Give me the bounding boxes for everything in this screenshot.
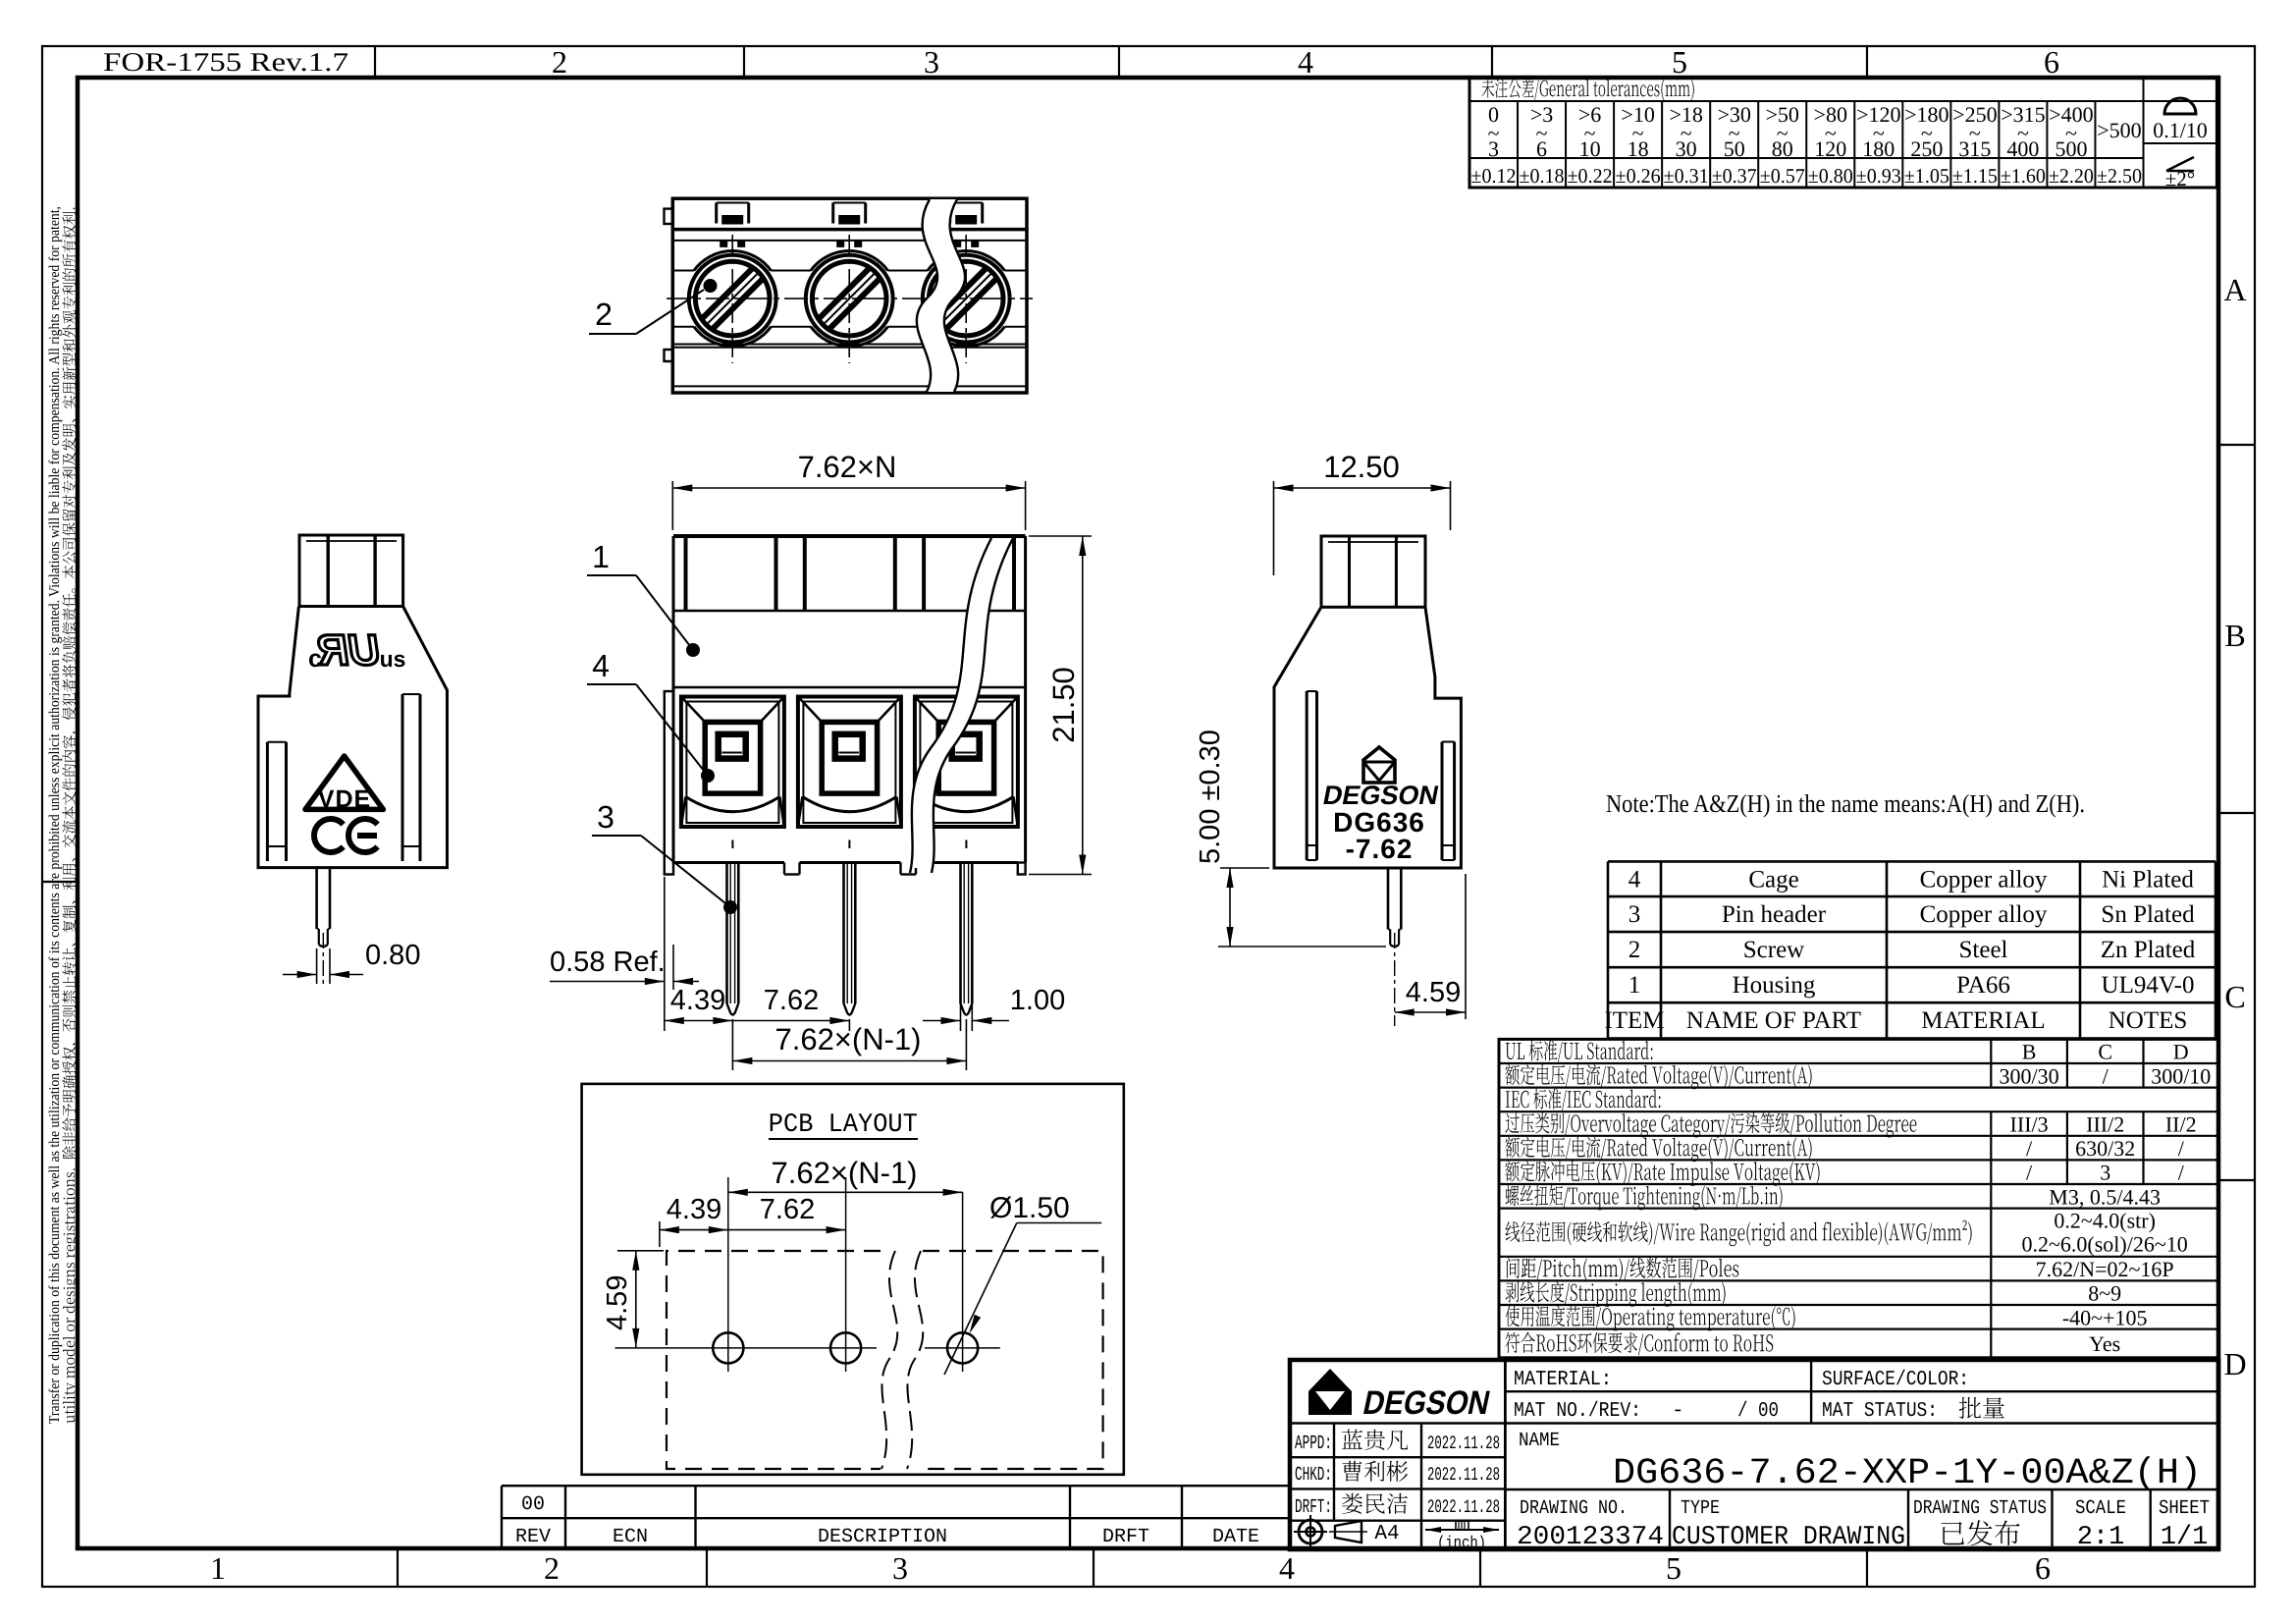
svg-text:Copper alloy: Copper alloy: [1920, 866, 2048, 893]
svg-text:6: 6: [2044, 44, 2059, 80]
svg-text:us: us: [380, 646, 406, 672]
svg-text:1: 1: [1629, 972, 1641, 999]
svg-text:Cage: Cage: [1748, 866, 1798, 893]
svg-text:Pin header: Pin header: [1722, 901, 1827, 928]
svg-text:±1.15: ±1.15: [1952, 164, 1998, 188]
svg-text:7.62: 7.62: [760, 1194, 815, 1225]
svg-text:21.50: 21.50: [1046, 667, 1081, 743]
svg-text:180: 180: [1862, 136, 1895, 161]
svg-text:±0.26: ±0.26: [1616, 164, 1661, 188]
svg-text:7.62×N: 7.62×N: [798, 450, 897, 484]
svg-text:7.62/N=02~16P: 7.62/N=02~16P: [2036, 1257, 2174, 1281]
svg-text:315: 315: [1958, 136, 1991, 161]
svg-text:±0.31: ±0.31: [1664, 164, 1709, 188]
svg-text:DEGSON: DEGSON: [1360, 1384, 1493, 1422]
svg-text:18: 18: [1628, 136, 1649, 161]
svg-text:400: 400: [2006, 136, 2039, 161]
svg-text:10: 10: [1579, 136, 1601, 161]
svg-text:/: /: [2026, 1161, 2033, 1185]
svg-text:0.58 Ref.: 0.58 Ref.: [550, 947, 666, 978]
svg-text:2022.11.28: 2022.11.28: [1427, 1496, 1500, 1518]
svg-text:SHEET: SHEET: [2159, 1497, 2210, 1520]
svg-text:7.62×(N-1): 7.62×(N-1): [771, 1156, 917, 1190]
svg-text:Note:The A&Z(H) in the name me: Note:The A&Z(H) in the name means:A(H) a…: [1606, 789, 2085, 818]
svg-text:1: 1: [210, 1550, 226, 1586]
svg-text:DRFT: DRFT: [1102, 1526, 1149, 1548]
svg-text:120: 120: [1814, 136, 1846, 161]
svg-text:±0.22: ±0.22: [1568, 164, 1613, 188]
svg-text:80: 80: [1772, 136, 1793, 161]
svg-text:/: /: [2178, 1161, 2185, 1185]
svg-text:C: C: [2098, 1040, 2112, 1064]
svg-text:±0.12: ±0.12: [1471, 164, 1517, 188]
svg-text:III/2: III/2: [2086, 1112, 2124, 1137]
svg-text:REV: REV: [515, 1526, 551, 1548]
svg-text:7.62×(N-1): 7.62×(N-1): [774, 1022, 921, 1056]
svg-text:Yes: Yes: [2089, 1331, 2120, 1356]
svg-text:1: 1: [592, 539, 610, 574]
svg-text:APPD:: APPD:: [1295, 1433, 1332, 1455]
svg-text:DRFT:: DRFT:: [1295, 1496, 1332, 1519]
svg-text:±0.18: ±0.18: [1520, 164, 1565, 188]
svg-text:300/10: 300/10: [2151, 1063, 2211, 1088]
svg-text:±2°: ±2°: [2165, 167, 2195, 190]
svg-text:8~9: 8~9: [2088, 1281, 2121, 1306]
svg-text:>500: >500: [2097, 118, 2141, 142]
svg-text:DG636-7.62-XXP-1Y-00A&Z(H): DG636-7.62-XXP-1Y-00A&Z(H): [1613, 1453, 2202, 1494]
svg-text:(inch): (inch): [1437, 1535, 1486, 1553]
svg-text:0.2~4.0(str): 0.2~4.0(str): [2054, 1209, 2156, 1233]
svg-text:±1.05: ±1.05: [1904, 164, 1949, 188]
svg-text:M3, 0.5/4.43: M3, 0.5/4.43: [2049, 1184, 2161, 1209]
svg-text:200123374: 200123374: [1517, 1523, 1664, 1552]
svg-text:MAT NO./REV:: MAT NO./REV:: [1514, 1400, 1641, 1423]
svg-text:3: 3: [892, 1550, 908, 1586]
svg-text:MATERIAL:: MATERIAL:: [1514, 1369, 1612, 1391]
svg-text:Ni Plated: Ni Plated: [2102, 866, 2194, 893]
svg-text:/: /: [2178, 1136, 2185, 1161]
svg-text:UL94V-0: UL94V-0: [2102, 972, 2195, 999]
svg-text:4: 4: [1279, 1550, 1295, 1586]
svg-text:4: 4: [592, 648, 610, 683]
svg-text:±0.93: ±0.93: [1856, 164, 1901, 188]
svg-text:DATE: DATE: [1212, 1526, 1259, 1548]
svg-text:12.50: 12.50: [1323, 450, 1400, 484]
svg-text:250: 250: [1910, 136, 1943, 161]
svg-text:0.2~6.0(sol)/26~10: 0.2~6.0(sol)/26~10: [2022, 1232, 2188, 1257]
svg-text:NOTES: NOTES: [2109, 1007, 2188, 1034]
svg-text:Transfer or duplication of thi: Transfer or duplication of this document…: [47, 206, 63, 1424]
svg-text:500: 500: [2055, 136, 2087, 161]
svg-text:±1.60: ±1.60: [2001, 164, 2046, 188]
svg-text:D: D: [2223, 1346, 2246, 1381]
svg-text:II/2: II/2: [2165, 1112, 2197, 1137]
svg-text:30: 30: [1676, 136, 1697, 161]
svg-text:TYPE: TYPE: [1681, 1497, 1720, 1520]
svg-text:III/3: III/3: [2010, 1112, 2049, 1137]
svg-text:2: 2: [1629, 937, 1641, 963]
svg-text:4.59: 4.59: [602, 1275, 633, 1330]
svg-text:VDE: VDE: [318, 785, 371, 813]
svg-text:DRAWING STATUS: DRAWING STATUS: [1913, 1497, 2047, 1520]
svg-text:-: -: [1672, 1400, 1684, 1423]
svg-text:A4: A4: [1374, 1523, 1399, 1545]
svg-text:±2.20: ±2.20: [2049, 164, 2094, 188]
svg-text:FOR-1755 Rev.1.7: FOR-1755 Rev.1.7: [103, 47, 348, 77]
svg-text:Ø1.50: Ø1.50: [989, 1192, 1070, 1224]
svg-text:c: c: [308, 645, 322, 673]
svg-text:7.62: 7.62: [764, 985, 819, 1016]
svg-text:6: 6: [1536, 136, 1547, 161]
svg-text:630/32: 630/32: [2075, 1136, 2135, 1161]
svg-text:5: 5: [1672, 44, 1687, 80]
svg-text:/: /: [2026, 1136, 2033, 1161]
svg-text:-40~+105: -40~+105: [2062, 1305, 2148, 1329]
svg-text:Housing: Housing: [1733, 972, 1816, 999]
svg-text:C: C: [2224, 979, 2245, 1014]
svg-text:00: 00: [521, 1493, 545, 1516]
svg-text:50: 50: [1724, 136, 1745, 161]
svg-text:B: B: [2022, 1040, 2037, 1064]
svg-text:0.1/10: 0.1/10: [2153, 118, 2208, 142]
svg-text:/ 00: / 00: [1737, 1400, 1779, 1423]
svg-text:2:1: 2:1: [2077, 1523, 2125, 1552]
svg-text:-7.62: -7.62: [1346, 834, 1414, 864]
svg-text:ITEM: ITEM: [1604, 1007, 1664, 1034]
svg-text:3: 3: [1488, 136, 1499, 161]
svg-text:300/30: 300/30: [2000, 1063, 2059, 1088]
svg-text:5: 5: [1666, 1550, 1682, 1586]
svg-text:PA66: PA66: [1956, 972, 2010, 999]
svg-text:4: 4: [1298, 44, 1313, 80]
svg-text:4: 4: [1629, 866, 1641, 893]
svg-text:2: 2: [544, 1550, 560, 1586]
svg-text:2022.11.28: 2022.11.28: [1427, 1464, 1500, 1486]
svg-text:B: B: [2224, 618, 2245, 653]
svg-text:DEGSON: DEGSON: [1320, 781, 1441, 810]
svg-text:DESCRIPTION: DESCRIPTION: [818, 1526, 947, 1548]
svg-text:4.39: 4.39: [670, 985, 725, 1016]
svg-text:3: 3: [597, 799, 614, 835]
svg-text:Zn Plated: Zn Plated: [2101, 937, 2196, 963]
svg-text:1/1: 1/1: [2161, 1523, 2209, 1552]
svg-text:4.59: 4.59: [1406, 977, 1461, 1008]
svg-text:NAME: NAME: [1519, 1430, 1560, 1452]
svg-text:0.80: 0.80: [365, 940, 420, 971]
svg-text:2022.11.28: 2022.11.28: [1427, 1433, 1500, 1454]
svg-text:SURFACE/COLOR:: SURFACE/COLOR:: [1822, 1369, 1969, 1391]
svg-text:3: 3: [2100, 1161, 2110, 1185]
svg-text:±0.80: ±0.80: [1808, 164, 1853, 188]
svg-text:3: 3: [924, 44, 939, 80]
svg-text:PCB LAYOUT: PCB LAYOUT: [769, 1110, 918, 1140]
svg-text:6: 6: [2035, 1550, 2051, 1586]
svg-text:4.39: 4.39: [667, 1194, 721, 1225]
svg-text:/: /: [2103, 1063, 2109, 1088]
svg-text:1.00: 1.00: [1010, 985, 1065, 1016]
svg-text:D: D: [2173, 1040, 2189, 1064]
svg-text:2: 2: [595, 297, 613, 332]
svg-text:UR: UR: [314, 626, 383, 675]
svg-text:NAME OF PART: NAME OF PART: [1686, 1007, 1861, 1034]
svg-text:2: 2: [552, 44, 567, 80]
svg-text:ECN: ECN: [613, 1526, 648, 1548]
svg-text:Steel: Steel: [1959, 937, 2008, 963]
svg-text:SCALE: SCALE: [2075, 1497, 2126, 1520]
svg-text:Screw: Screw: [1743, 937, 1804, 963]
svg-text:5.00 ±0.30: 5.00 ±0.30: [1195, 730, 1226, 864]
svg-text:MATERIAL: MATERIAL: [1921, 1007, 2045, 1034]
svg-text:A: A: [2223, 272, 2246, 307]
svg-text:DRAWING NO.: DRAWING NO.: [1520, 1497, 1628, 1520]
svg-text:CHKD:: CHKD:: [1295, 1464, 1332, 1487]
svg-text:±2.50: ±2.50: [2097, 164, 2142, 188]
svg-text:3: 3: [1629, 901, 1641, 928]
svg-text:±0.37: ±0.37: [1712, 164, 1757, 188]
svg-text:Copper alloy: Copper alloy: [1920, 901, 2048, 928]
svg-text:±0.57: ±0.57: [1760, 164, 1805, 188]
svg-text:CUSTOMER DRAWING: CUSTOMER DRAWING: [1672, 1523, 1905, 1552]
svg-text:MAT STATUS:: MAT STATUS:: [1822, 1400, 1938, 1423]
svg-text:Sn Plated: Sn Plated: [2101, 901, 2195, 928]
